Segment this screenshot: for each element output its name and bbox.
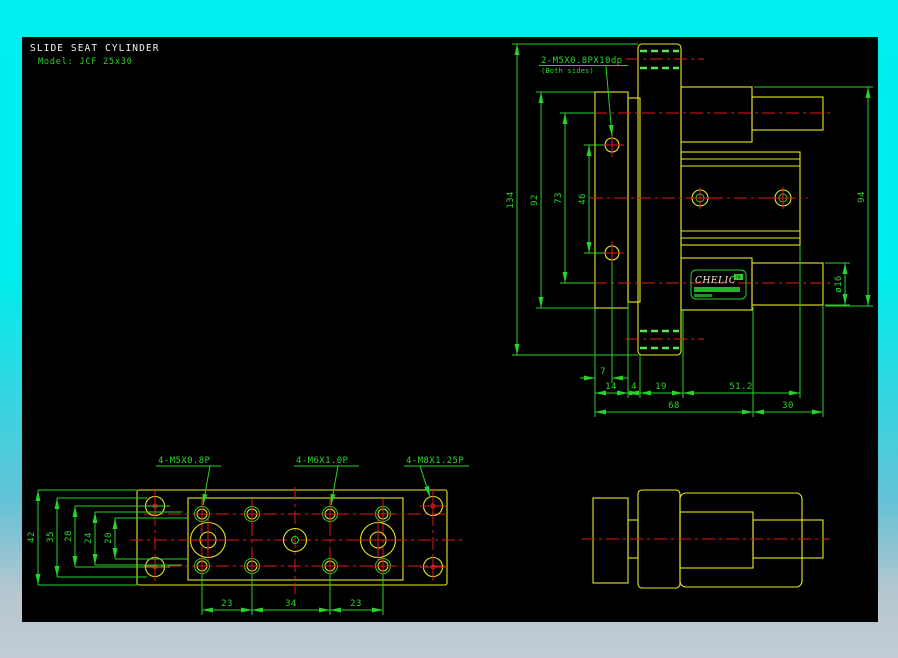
dim-68: 68 [668, 401, 680, 411]
plan-view: 4-M5X0.8P 4-M6X1.0P 4-M8X1.25P [27, 456, 469, 615]
page-title: SLIDE SEAT CYLINDER [30, 43, 160, 54]
dim-23-right: 23 [350, 599, 362, 609]
thread-note-text: 2-M5X0.8PX10dp [541, 56, 622, 66]
dim-34: 34 [285, 599, 297, 609]
m6-hole [243, 557, 261, 575]
counterbore-left [187, 519, 229, 561]
dim-7: 7 [600, 367, 606, 377]
m5-hole [374, 557, 392, 575]
side-view-geometry [595, 44, 823, 355]
m6-hole [321, 505, 339, 523]
dim-19: 19 [655, 382, 667, 392]
note-leader [606, 66, 612, 136]
tm-text: TM [736, 275, 741, 280]
side-view: CHELIC TM 2-M5X0.8PX10dp (Both sides) [506, 44, 873, 417]
drawing-canvas[interactable]: SLIDE SEAT CYLINDER Model: JCF 25x30 [22, 37, 878, 622]
thread-note: 2-M5X0.8PX10dp (Both sides) [539, 56, 628, 136]
m6-hole [321, 557, 339, 575]
dim-73: 73 [554, 192, 564, 204]
upper-block [681, 87, 752, 142]
end-inner-block [680, 512, 753, 568]
logo-subtext-bar [694, 287, 740, 292]
dim-46: 46 [578, 193, 588, 205]
dim-14: 14 [605, 382, 617, 392]
m8-hole [420, 493, 446, 519]
dim-24: 24 [84, 532, 94, 544]
logo-subtext-bar2 [694, 294, 712, 297]
end-body [680, 493, 802, 587]
dim-94: 94 [857, 191, 867, 203]
dim-28: 28 [64, 530, 74, 542]
model-label: Model: JCF 25x30 [38, 57, 133, 67]
dim-20: 20 [104, 532, 114, 544]
note-m6: 4-M6X1.0P [296, 456, 349, 466]
note-m8: 4-M8X1.25P [406, 456, 464, 466]
m5-hole [374, 505, 392, 523]
dim-4: 4 [631, 382, 637, 392]
slide-table [638, 44, 681, 355]
end-plate [593, 498, 628, 583]
counterbore-right [357, 519, 399, 561]
thread-note-sub: (Both sides) [541, 67, 594, 75]
dim-51-2: 51.2 [729, 382, 752, 392]
cad-drawing: SLIDE SEAT CYLINDER Model: JCF 25x30 [22, 37, 878, 622]
dim-35: 35 [46, 531, 56, 543]
dim-92: 92 [530, 194, 540, 206]
side-view-dims-bottom: 7 14 4 19 51.2 68 30 [580, 245, 823, 417]
end-rod [753, 520, 823, 558]
note-m5: 4-M5X0.8P [158, 456, 211, 466]
dim-134: 134 [506, 191, 516, 208]
dim-30: 30 [782, 401, 794, 411]
dim-23-left: 23 [221, 599, 233, 609]
dim-42: 42 [27, 531, 37, 543]
side-view-dims-right: 94 ø16 [754, 87, 873, 306]
m6-hole [243, 505, 261, 523]
body-screw-right [770, 187, 796, 209]
end-view [582, 490, 830, 588]
dim-rod-dia: ø16 [834, 275, 844, 292]
m8-hole [420, 554, 446, 580]
chelic-logo: CHELIC TM [691, 270, 746, 299]
hidden-slot-lines [640, 51, 679, 348]
brand-logo-text: CHELIC [695, 276, 736, 286]
viewer-background: { "title_block": { "title": "SLIDE SEAT … [0, 0, 898, 658]
plan-view-centerlines [130, 487, 462, 594]
body-screw-left [687, 187, 713, 209]
title-block: SLIDE SEAT CYLINDER Model: JCF 25x30 [30, 43, 160, 67]
piston-rod [752, 263, 823, 305]
